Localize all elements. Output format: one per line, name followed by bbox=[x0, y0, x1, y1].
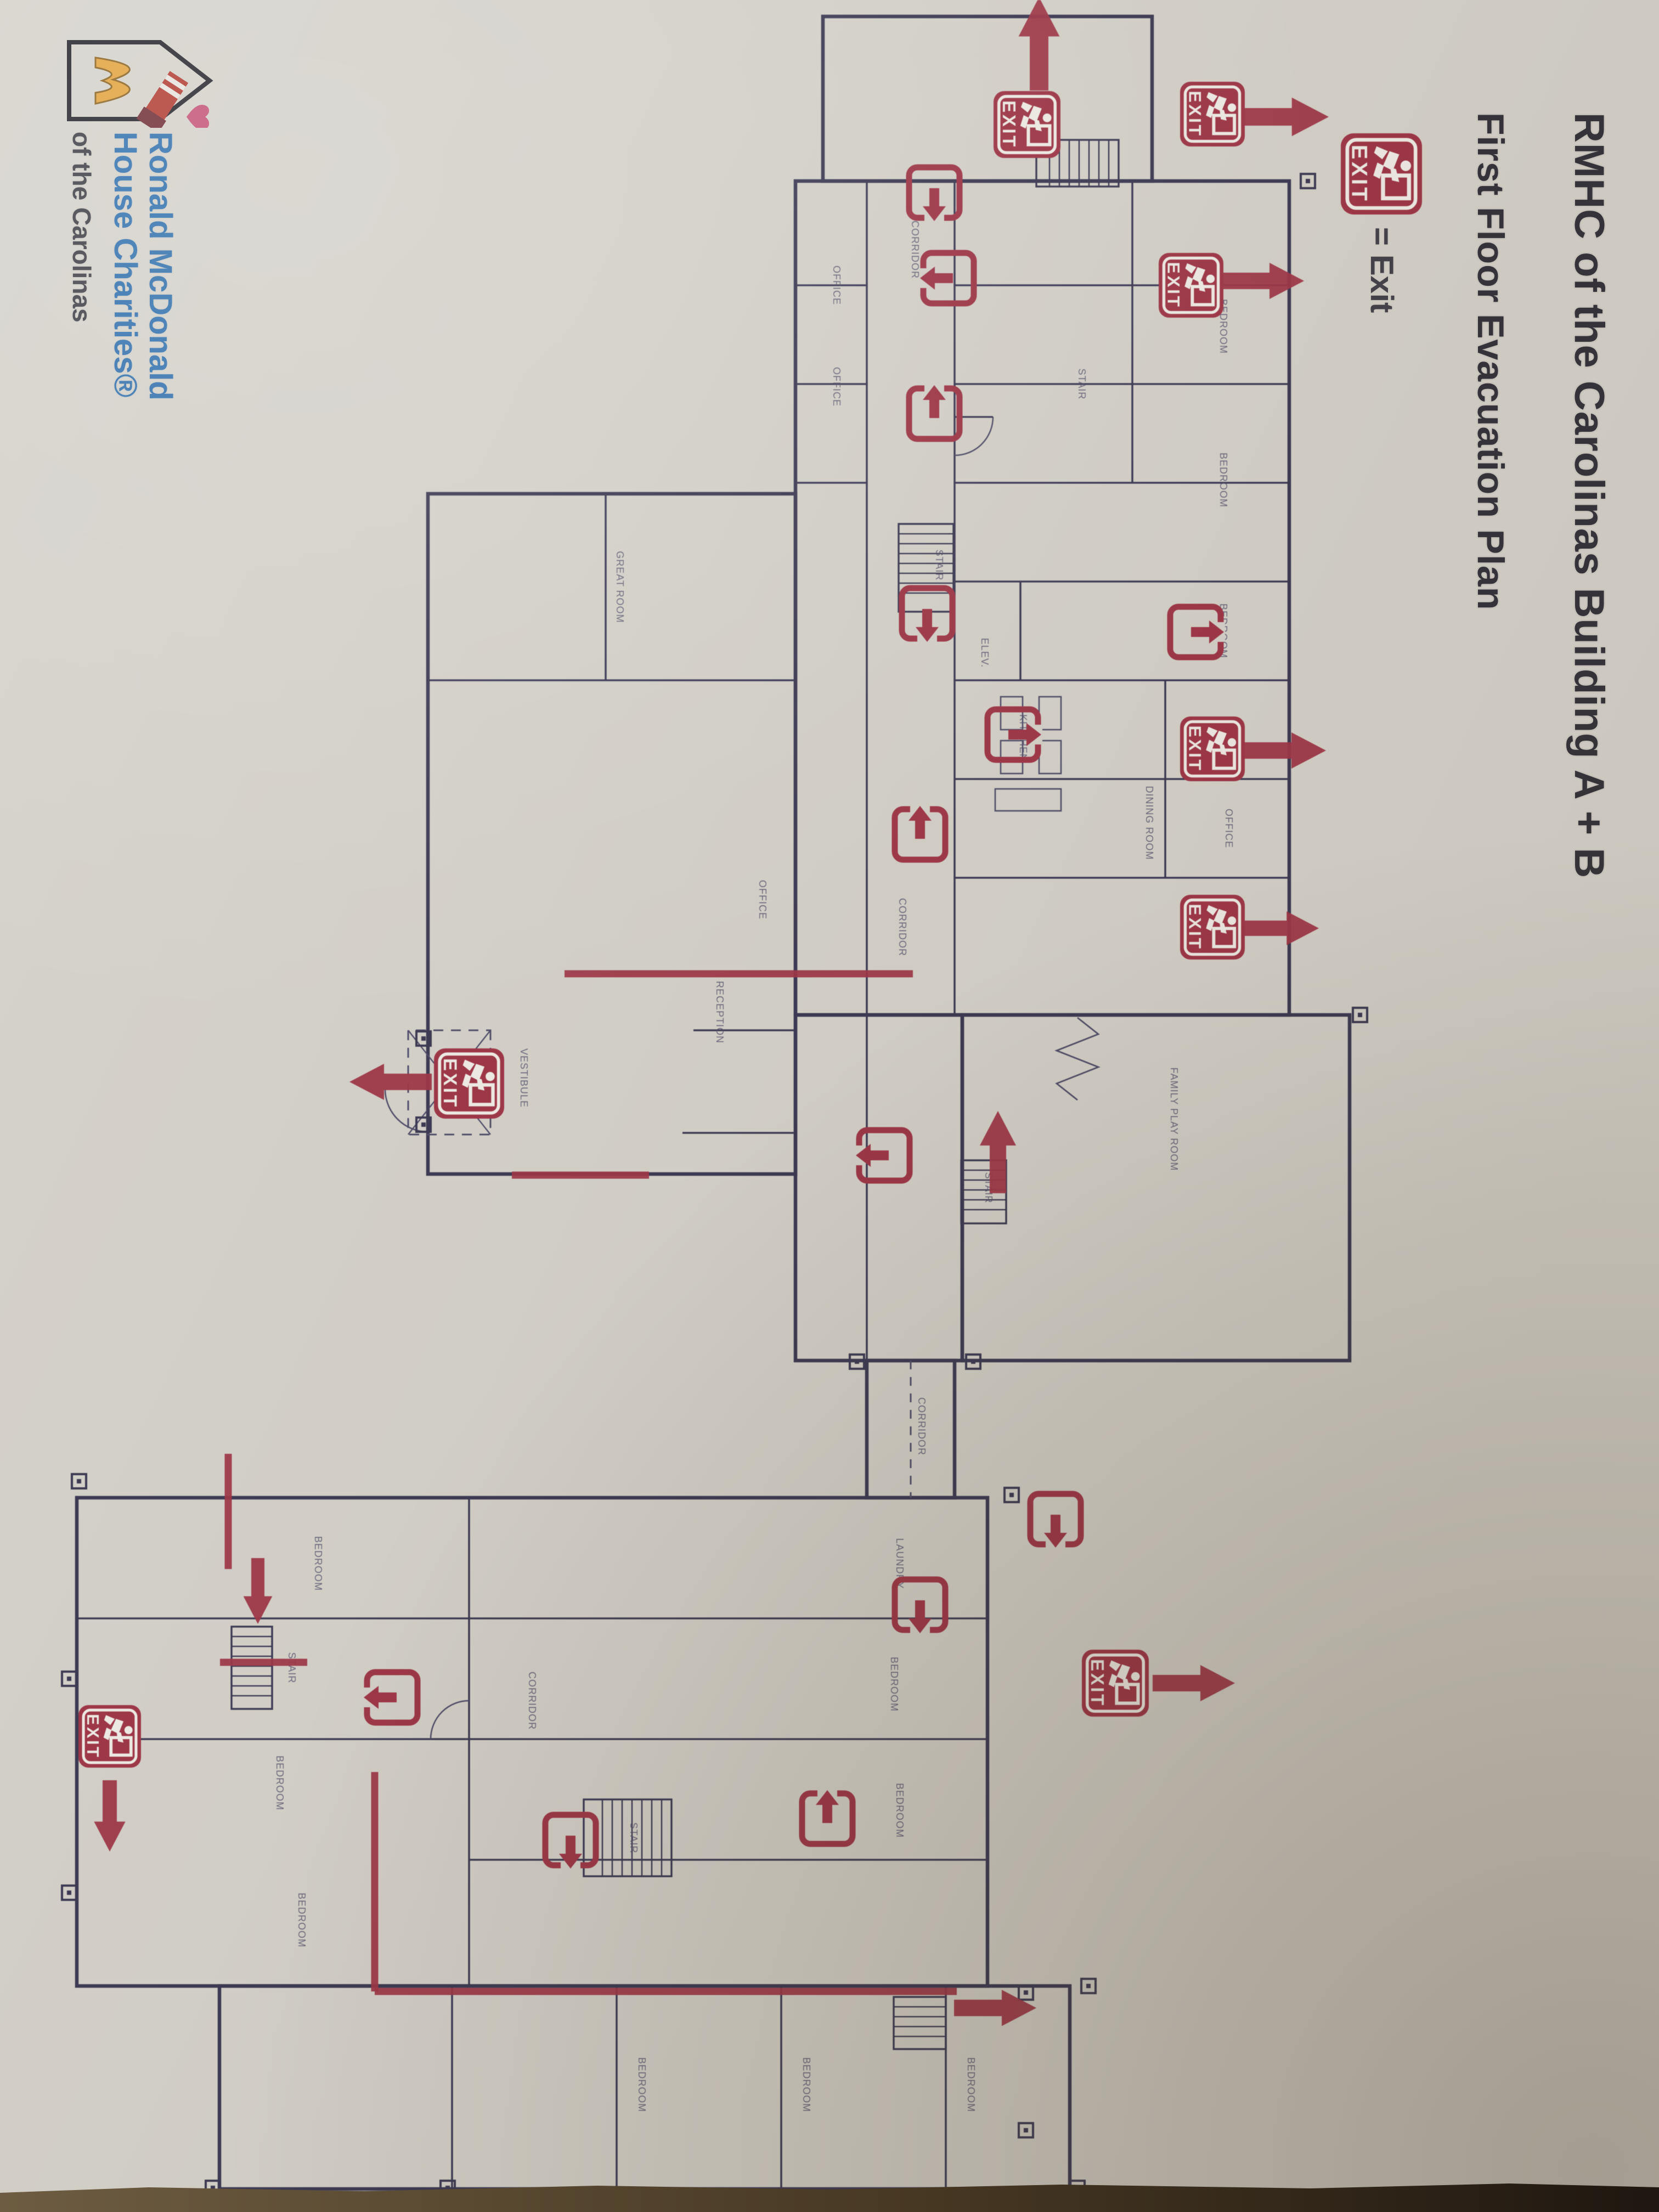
node-inner bbox=[1306, 179, 1310, 183]
room-label: BEDROOM bbox=[966, 2057, 977, 2112]
room-label: BEDROOM bbox=[801, 2057, 812, 2112]
room-label: CORRIDOR bbox=[916, 1397, 927, 1455]
node-inner bbox=[1358, 1013, 1362, 1017]
node-inner bbox=[1024, 1990, 1028, 1995]
runner-head bbox=[1228, 917, 1236, 925]
room-label: FAMILY PLAY ROOM bbox=[1169, 1068, 1180, 1171]
room-label: OFFICE bbox=[831, 266, 842, 305]
exit-badge-label: EXIT bbox=[1186, 904, 1205, 951]
route-marker-up bbox=[988, 709, 1042, 760]
fixture bbox=[995, 789, 1061, 811]
evacuation-arrow-up bbox=[1244, 732, 1326, 769]
exit-badge-label: EXIT bbox=[83, 1714, 103, 1759]
building-outline bbox=[795, 1015, 962, 1361]
route-marker-down bbox=[919, 253, 974, 303]
room-label: OFFICE bbox=[1223, 809, 1234, 848]
route-marker-left bbox=[909, 384, 960, 439]
stair-run bbox=[899, 524, 953, 612]
node-inner bbox=[67, 1891, 71, 1895]
evacuation-arrow-left bbox=[1019, 0, 1060, 91]
route-marker-down bbox=[855, 1130, 910, 1181]
evacuation-arrow-right bbox=[94, 1780, 125, 1852]
node-inner bbox=[1024, 2128, 1028, 2132]
runner-head bbox=[1043, 114, 1052, 122]
runner-head bbox=[486, 1072, 495, 1081]
node-marker bbox=[62, 1886, 76, 1900]
node-marker bbox=[72, 1474, 86, 1488]
evacuation-arrow-up bbox=[1242, 911, 1319, 945]
runner-head bbox=[1401, 161, 1411, 171]
evacuation-arrow-up bbox=[1153, 1665, 1235, 1701]
evacuation-arrow-up bbox=[954, 1990, 1036, 2026]
door-swing bbox=[431, 1701, 469, 1739]
node-inner bbox=[855, 1359, 859, 1364]
exit-badge-label: EXIT bbox=[999, 100, 1019, 149]
room-label: STAIR bbox=[628, 1822, 639, 1854]
room-label: CORRIDOR bbox=[897, 898, 908, 956]
stair-outline bbox=[232, 1627, 272, 1709]
exit-sign-badge: EXIT bbox=[78, 1705, 141, 1768]
evacuation-arrow-down bbox=[349, 1064, 432, 1100]
exit-badge-label: EXIT bbox=[1186, 726, 1205, 772]
building-outline bbox=[962, 1015, 1350, 1361]
room-label: ELEV. bbox=[979, 638, 990, 668]
route-marker-right bbox=[545, 1815, 596, 1870]
document-sheet: RMHC of the Carolinas Building A + B Fir… bbox=[0, 0, 1659, 2212]
exit-sign-badge: EXIT bbox=[994, 91, 1060, 158]
exit-badge-label: EXIT bbox=[1164, 262, 1184, 309]
floor-plan-svg: BEDROOMBEDROOMBEDROOMOFFICESTOR.DINING R… bbox=[0, 0, 1659, 2212]
node-marker bbox=[62, 1672, 76, 1686]
evacuation-arrow-right bbox=[244, 1558, 273, 1624]
room-label: OFFICE bbox=[757, 880, 768, 919]
room-label: BEDROOM bbox=[894, 1783, 905, 1838]
node-marker bbox=[1353, 1008, 1367, 1022]
route-marker-right bbox=[902, 588, 952, 643]
node-inner bbox=[1086, 1984, 1091, 1988]
route-marker-up bbox=[1170, 607, 1225, 657]
route-marker-down bbox=[363, 1672, 417, 1723]
building-outline bbox=[823, 16, 1152, 181]
room-label: OFFICE bbox=[831, 367, 842, 407]
evacuation-arrow-up bbox=[1222, 263, 1304, 299]
room-label: GREAT ROOM bbox=[614, 551, 625, 623]
room-label: STAIR bbox=[934, 550, 945, 581]
runner-head bbox=[1206, 275, 1215, 283]
room-label: STAIR bbox=[286, 1652, 297, 1684]
room-label: BEDROOM bbox=[274, 1756, 285, 1810]
exit-sign-badge: EXIT bbox=[1082, 1650, 1149, 1717]
route-marker-left bbox=[802, 1789, 853, 1844]
room-label: BEDROOM bbox=[1218, 453, 1229, 507]
room-label: CORRIDOR bbox=[527, 1672, 538, 1730]
node-inner bbox=[421, 1036, 426, 1041]
room-label: BEDROOM bbox=[313, 1536, 324, 1591]
node-marker bbox=[1081, 1979, 1096, 1993]
node-marker bbox=[1019, 2123, 1033, 2137]
room-label: BEDROOM bbox=[296, 1893, 307, 1948]
exit-sign-badge: EXIT bbox=[434, 1048, 504, 1119]
stair-run bbox=[232, 1627, 272, 1709]
node-inner bbox=[971, 1359, 975, 1364]
runner-head bbox=[1228, 738, 1236, 747]
fixture bbox=[1039, 741, 1061, 774]
exit-badge-label: EXIT bbox=[439, 1058, 460, 1109]
room-label: BEDROOM bbox=[636, 2057, 647, 2112]
evacuation-arrow-up bbox=[1241, 98, 1329, 136]
room-label: VESTIBULE bbox=[518, 1048, 529, 1108]
route-marker-right bbox=[909, 167, 960, 222]
exit-badge-label: EXIT bbox=[1087, 1659, 1108, 1707]
node-marker bbox=[1301, 174, 1315, 188]
exit-sign-badge: EXIT bbox=[1180, 716, 1245, 781]
exit-sign-badge: EXIT bbox=[1180, 895, 1245, 960]
node-inner bbox=[67, 1677, 71, 1681]
exit-sign-badge: EXIT bbox=[1180, 82, 1245, 146]
exit-badge-label: EXIT bbox=[1347, 145, 1372, 204]
door-arc bbox=[431, 1701, 469, 1739]
exit-badge-label: EXIT bbox=[1186, 91, 1205, 138]
node-inner bbox=[1009, 1493, 1014, 1497]
legend-exit-badge: EXIT bbox=[1341, 133, 1422, 215]
runner-head bbox=[1131, 1672, 1140, 1681]
node-marker bbox=[1005, 1488, 1019, 1502]
stair-outline bbox=[899, 524, 953, 612]
runner-head bbox=[125, 1726, 133, 1734]
building-outline bbox=[77, 1498, 988, 1986]
room-label: BEDROOM bbox=[889, 1657, 900, 1712]
route-marker-right bbox=[1030, 1494, 1081, 1549]
node-inner bbox=[77, 1479, 81, 1483]
stair-outline bbox=[894, 1997, 946, 2049]
node-inner bbox=[421, 1122, 426, 1127]
room-label: RECEPTION bbox=[714, 981, 725, 1043]
stair-run bbox=[894, 1997, 946, 2049]
exit-sign-badge: EXIT bbox=[1159, 253, 1223, 318]
room-label: STAIR bbox=[1076, 369, 1087, 400]
photo-of-evacuation-plan: RMHC of the Carolinas Building A + B Fir… bbox=[0, 0, 1659, 2212]
room-label: DINING ROOM bbox=[1144, 786, 1155, 860]
folding-partition bbox=[1057, 1018, 1098, 1100]
runner-head bbox=[1228, 104, 1236, 112]
route-marker-left bbox=[895, 805, 945, 860]
